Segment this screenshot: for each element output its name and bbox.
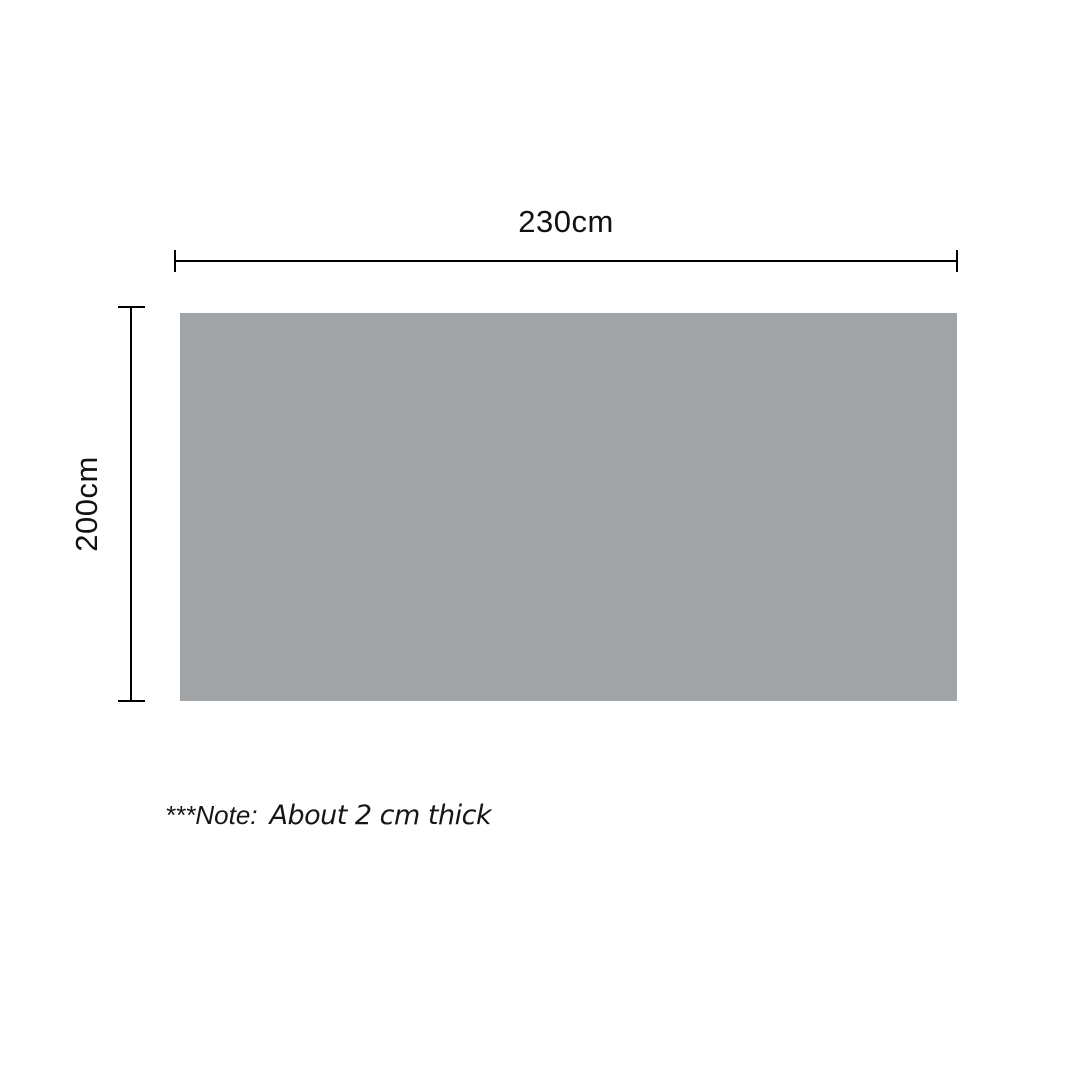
height-dimension-label-wrap: 200cm <box>58 306 116 702</box>
height-dimension-rule <box>130 306 132 702</box>
width-dimension-label: 230cm <box>174 204 958 240</box>
height-dimension-label: 200cm <box>69 456 105 552</box>
width-dimension-rule <box>174 260 958 262</box>
width-dimension-line <box>174 250 958 272</box>
product-dimension-diagram: 230cm 200cm ***Note: About 2 cm thick <box>0 0 1080 1080</box>
height-dimension-tick-bottom <box>118 700 145 702</box>
width-dimension-tick-right <box>956 250 958 272</box>
thickness-note: ***Note: About 2 cm thick <box>165 800 491 831</box>
product-surface <box>180 313 957 701</box>
note-text: About 2 cm thick <box>270 800 492 831</box>
note-prefix: ***Note: <box>165 800 258 831</box>
height-dimension-line <box>118 306 145 702</box>
